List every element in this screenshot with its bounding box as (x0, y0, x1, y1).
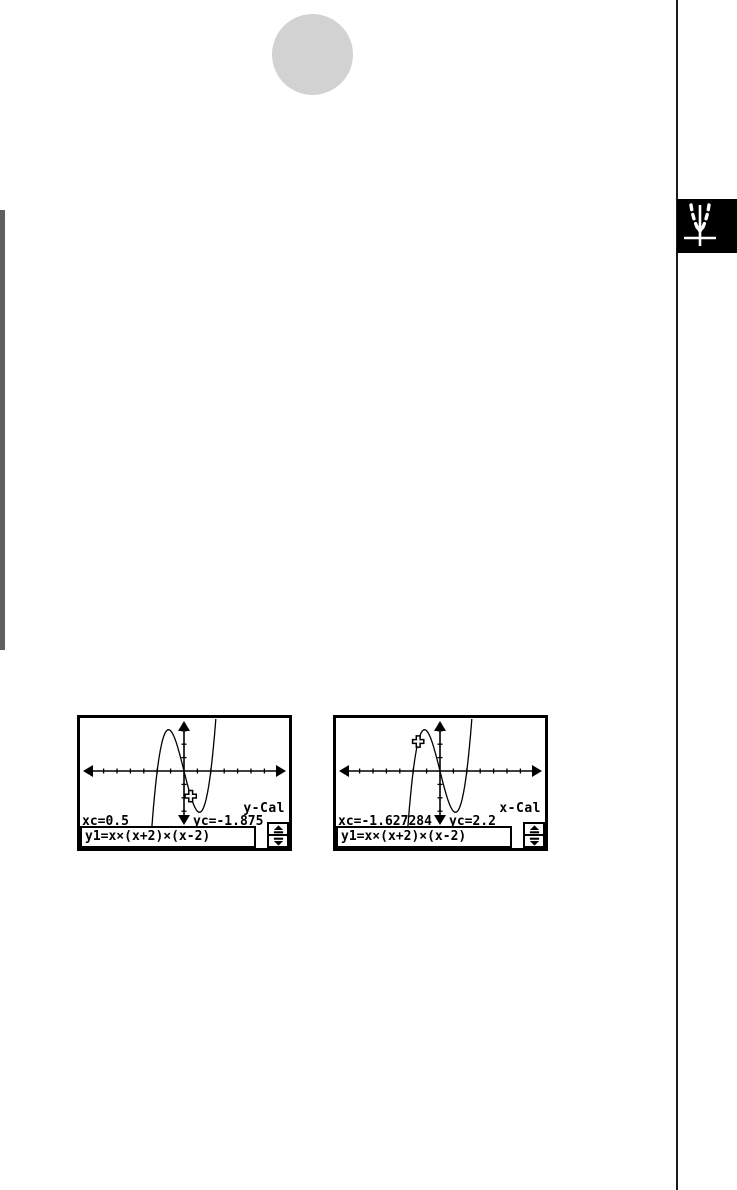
trace-mode-label: x-Cal (499, 801, 541, 816)
parabola-graph-icon (677, 199, 737, 253)
formula-display: y1=x×(x+2)×(x-2) (80, 826, 256, 848)
calculator-screenshot-x-cal: x-Cal xc=-1.627284 yc=2.2 y1=x×(x+2)×(x-… (333, 715, 548, 851)
formula-display: y1=x×(x+2)×(x-2) (336, 826, 512, 848)
trace-cursor-icon (413, 736, 424, 747)
scroll-widget (267, 822, 289, 848)
page-corner-dot (272, 14, 353, 95)
formula-row: y1=x×(x+2)×(x-2) (80, 826, 289, 848)
page-margin-rule (676, 0, 678, 1190)
scroll-up-icon (269, 824, 287, 836)
formula-row: y1=x×(x+2)×(x-2) (336, 826, 545, 848)
chapter-tab (677, 199, 737, 253)
section-edge-marker (0, 210, 5, 650)
scroll-down-icon (525, 836, 543, 846)
calculator-screenshot-y-cal: y-Cal xc=0.5 yc=-1.875 y1=x×(x+2)×(x-2) (77, 715, 292, 851)
scroll-widget (523, 822, 545, 848)
manual-page: y-Cal xc=0.5 yc=-1.875 y1=x×(x+2)×(x-2) … (0, 0, 737, 1190)
trace-cursor-icon (185, 791, 196, 802)
scroll-down-icon (269, 836, 287, 846)
scroll-up-icon (525, 824, 543, 836)
